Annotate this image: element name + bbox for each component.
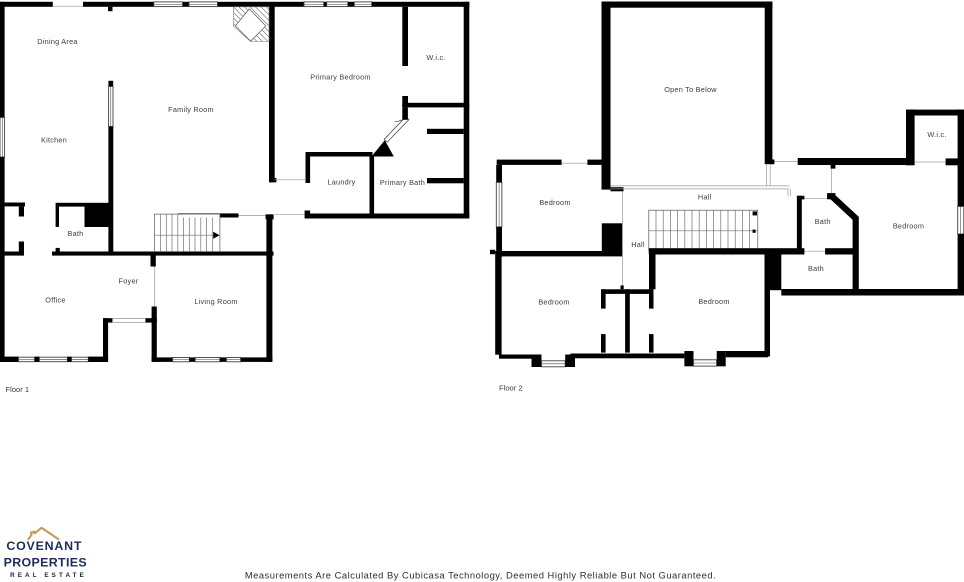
svg-text:Hall: Hall: [698, 192, 712, 201]
svg-text:Foyer: Foyer: [119, 276, 139, 285]
svg-text:Bath: Bath: [815, 217, 831, 226]
svg-text:Laundry: Laundry: [327, 177, 355, 186]
svg-text:W.i.c.: W.i.c.: [426, 53, 445, 62]
svg-text:W.i.c.: W.i.c.: [927, 130, 946, 139]
svg-text:Open To Below: Open To Below: [664, 85, 717, 94]
svg-text:Bedroom: Bedroom: [698, 297, 729, 306]
svg-text:Primary Bath: Primary Bath: [380, 178, 425, 187]
svg-text:PROPERTIES: PROPERTIES: [4, 556, 87, 570]
svg-text:Bath: Bath: [67, 229, 83, 238]
svg-text:Measurements Are Calculated By: Measurements Are Calculated By Cubicasa …: [245, 570, 716, 581]
svg-text:Bath: Bath: [808, 264, 824, 273]
svg-text:Bedroom: Bedroom: [893, 221, 924, 230]
svg-text:Hall: Hall: [631, 240, 645, 249]
svg-text:Kitchen: Kitchen: [41, 135, 67, 144]
svg-text:COVENANT: COVENANT: [6, 539, 82, 553]
svg-text:Bedroom: Bedroom: [538, 297, 569, 306]
svg-text:REAL ESTATE: REAL ESTATE: [10, 572, 87, 579]
svg-text:Bedroom: Bedroom: [539, 198, 570, 207]
svg-text:Floor 1: Floor 1: [6, 385, 30, 394]
svg-text:Floor 2: Floor 2: [499, 384, 523, 393]
svg-text:Living Room: Living Room: [194, 297, 237, 306]
svg-text:Primary Bedroom: Primary Bedroom: [310, 72, 371, 81]
svg-text:Office: Office: [45, 295, 65, 304]
svg-text:Dining Area: Dining Area: [37, 37, 78, 46]
svg-text:Family Room: Family Room: [168, 105, 214, 114]
